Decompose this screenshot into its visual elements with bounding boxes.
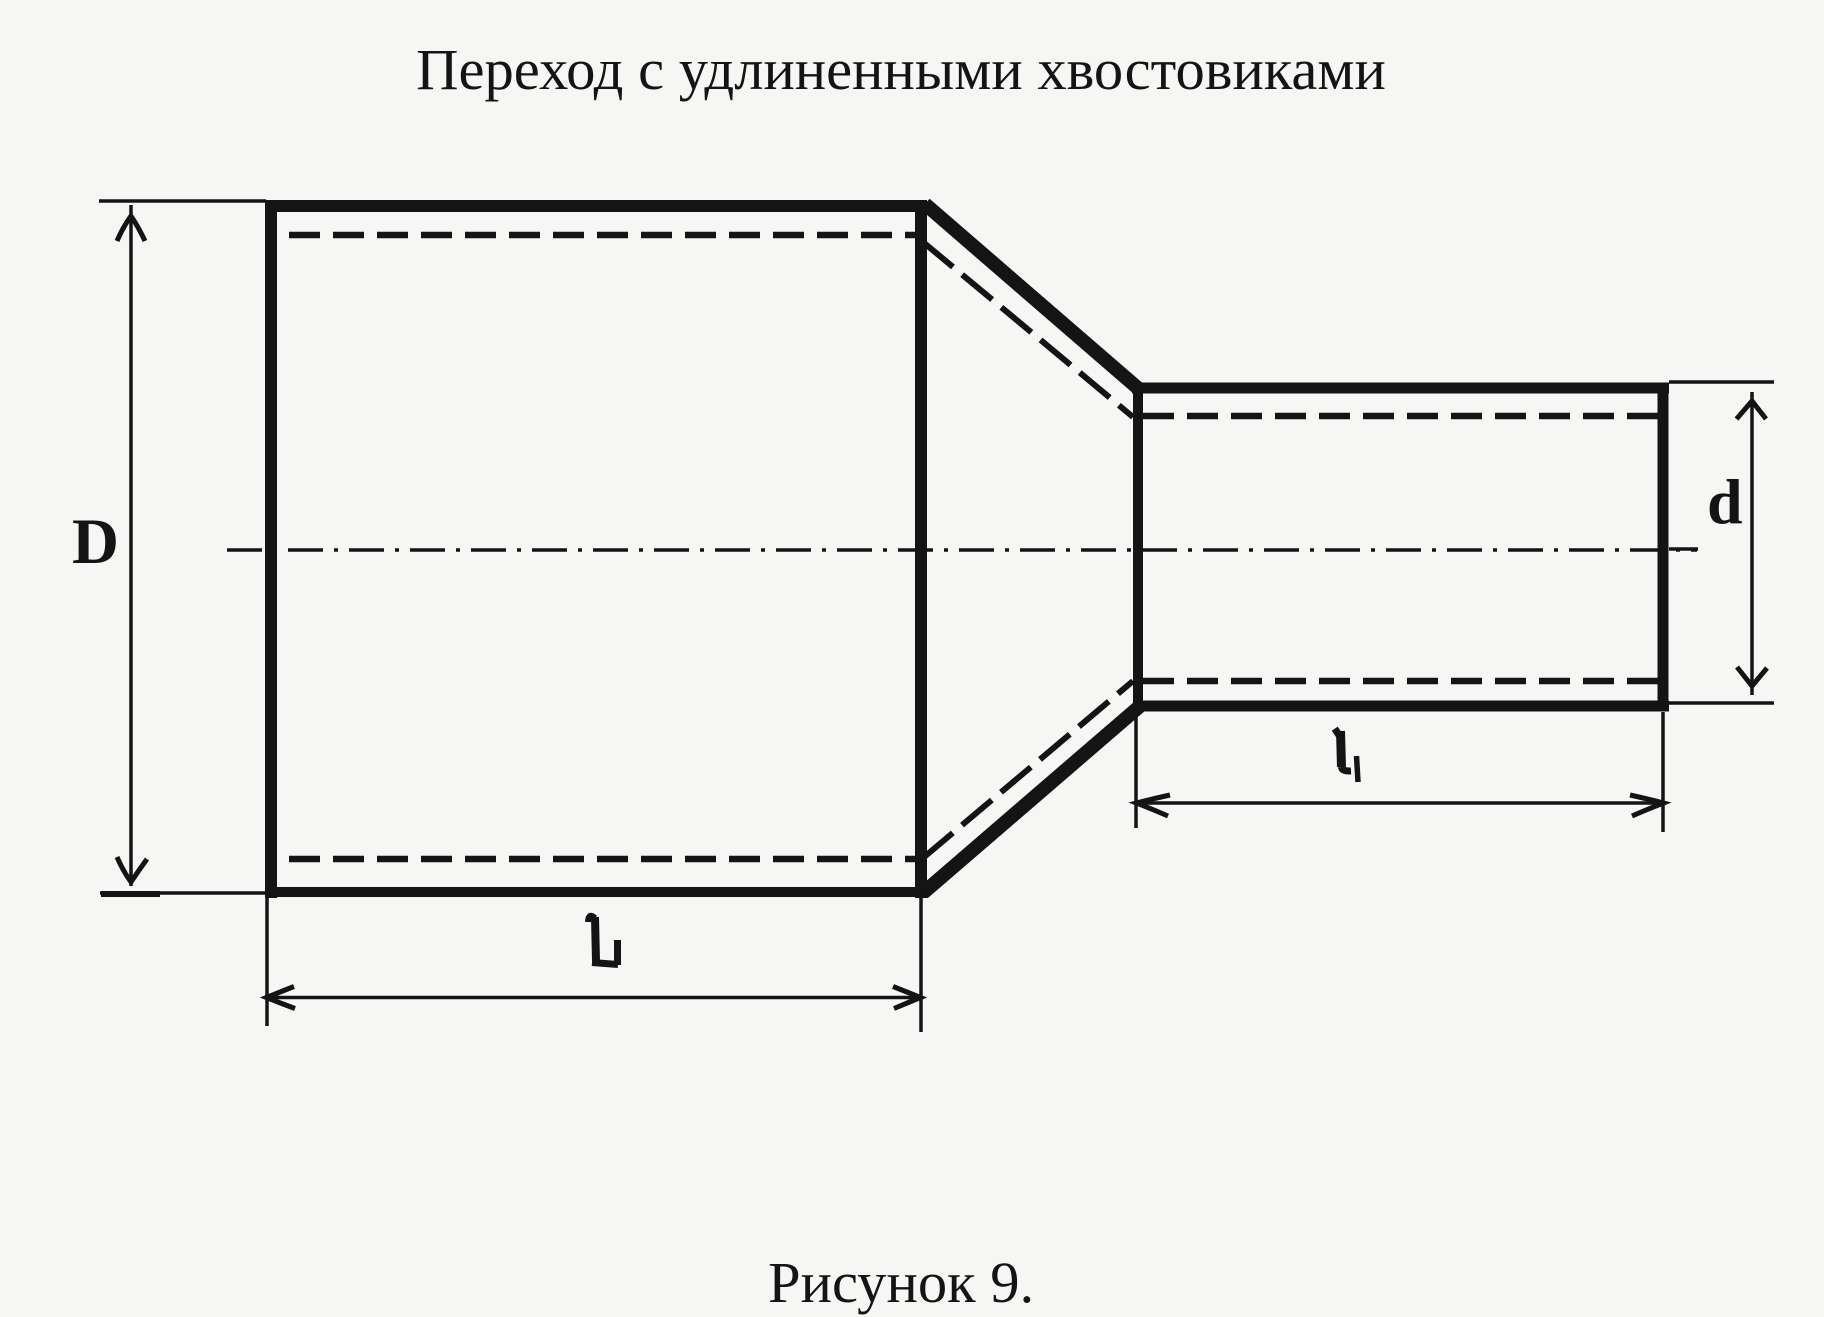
svg-text:Переход с удлиненными хвостови: Переход с удлиненными хвостовиками — [416, 37, 1386, 102]
svg-text:D: D — [72, 506, 119, 578]
svg-text:d: d — [1707, 466, 1743, 537]
svg-text:Рисунок 9.: Рисунок 9. — [768, 1250, 1034, 1315]
